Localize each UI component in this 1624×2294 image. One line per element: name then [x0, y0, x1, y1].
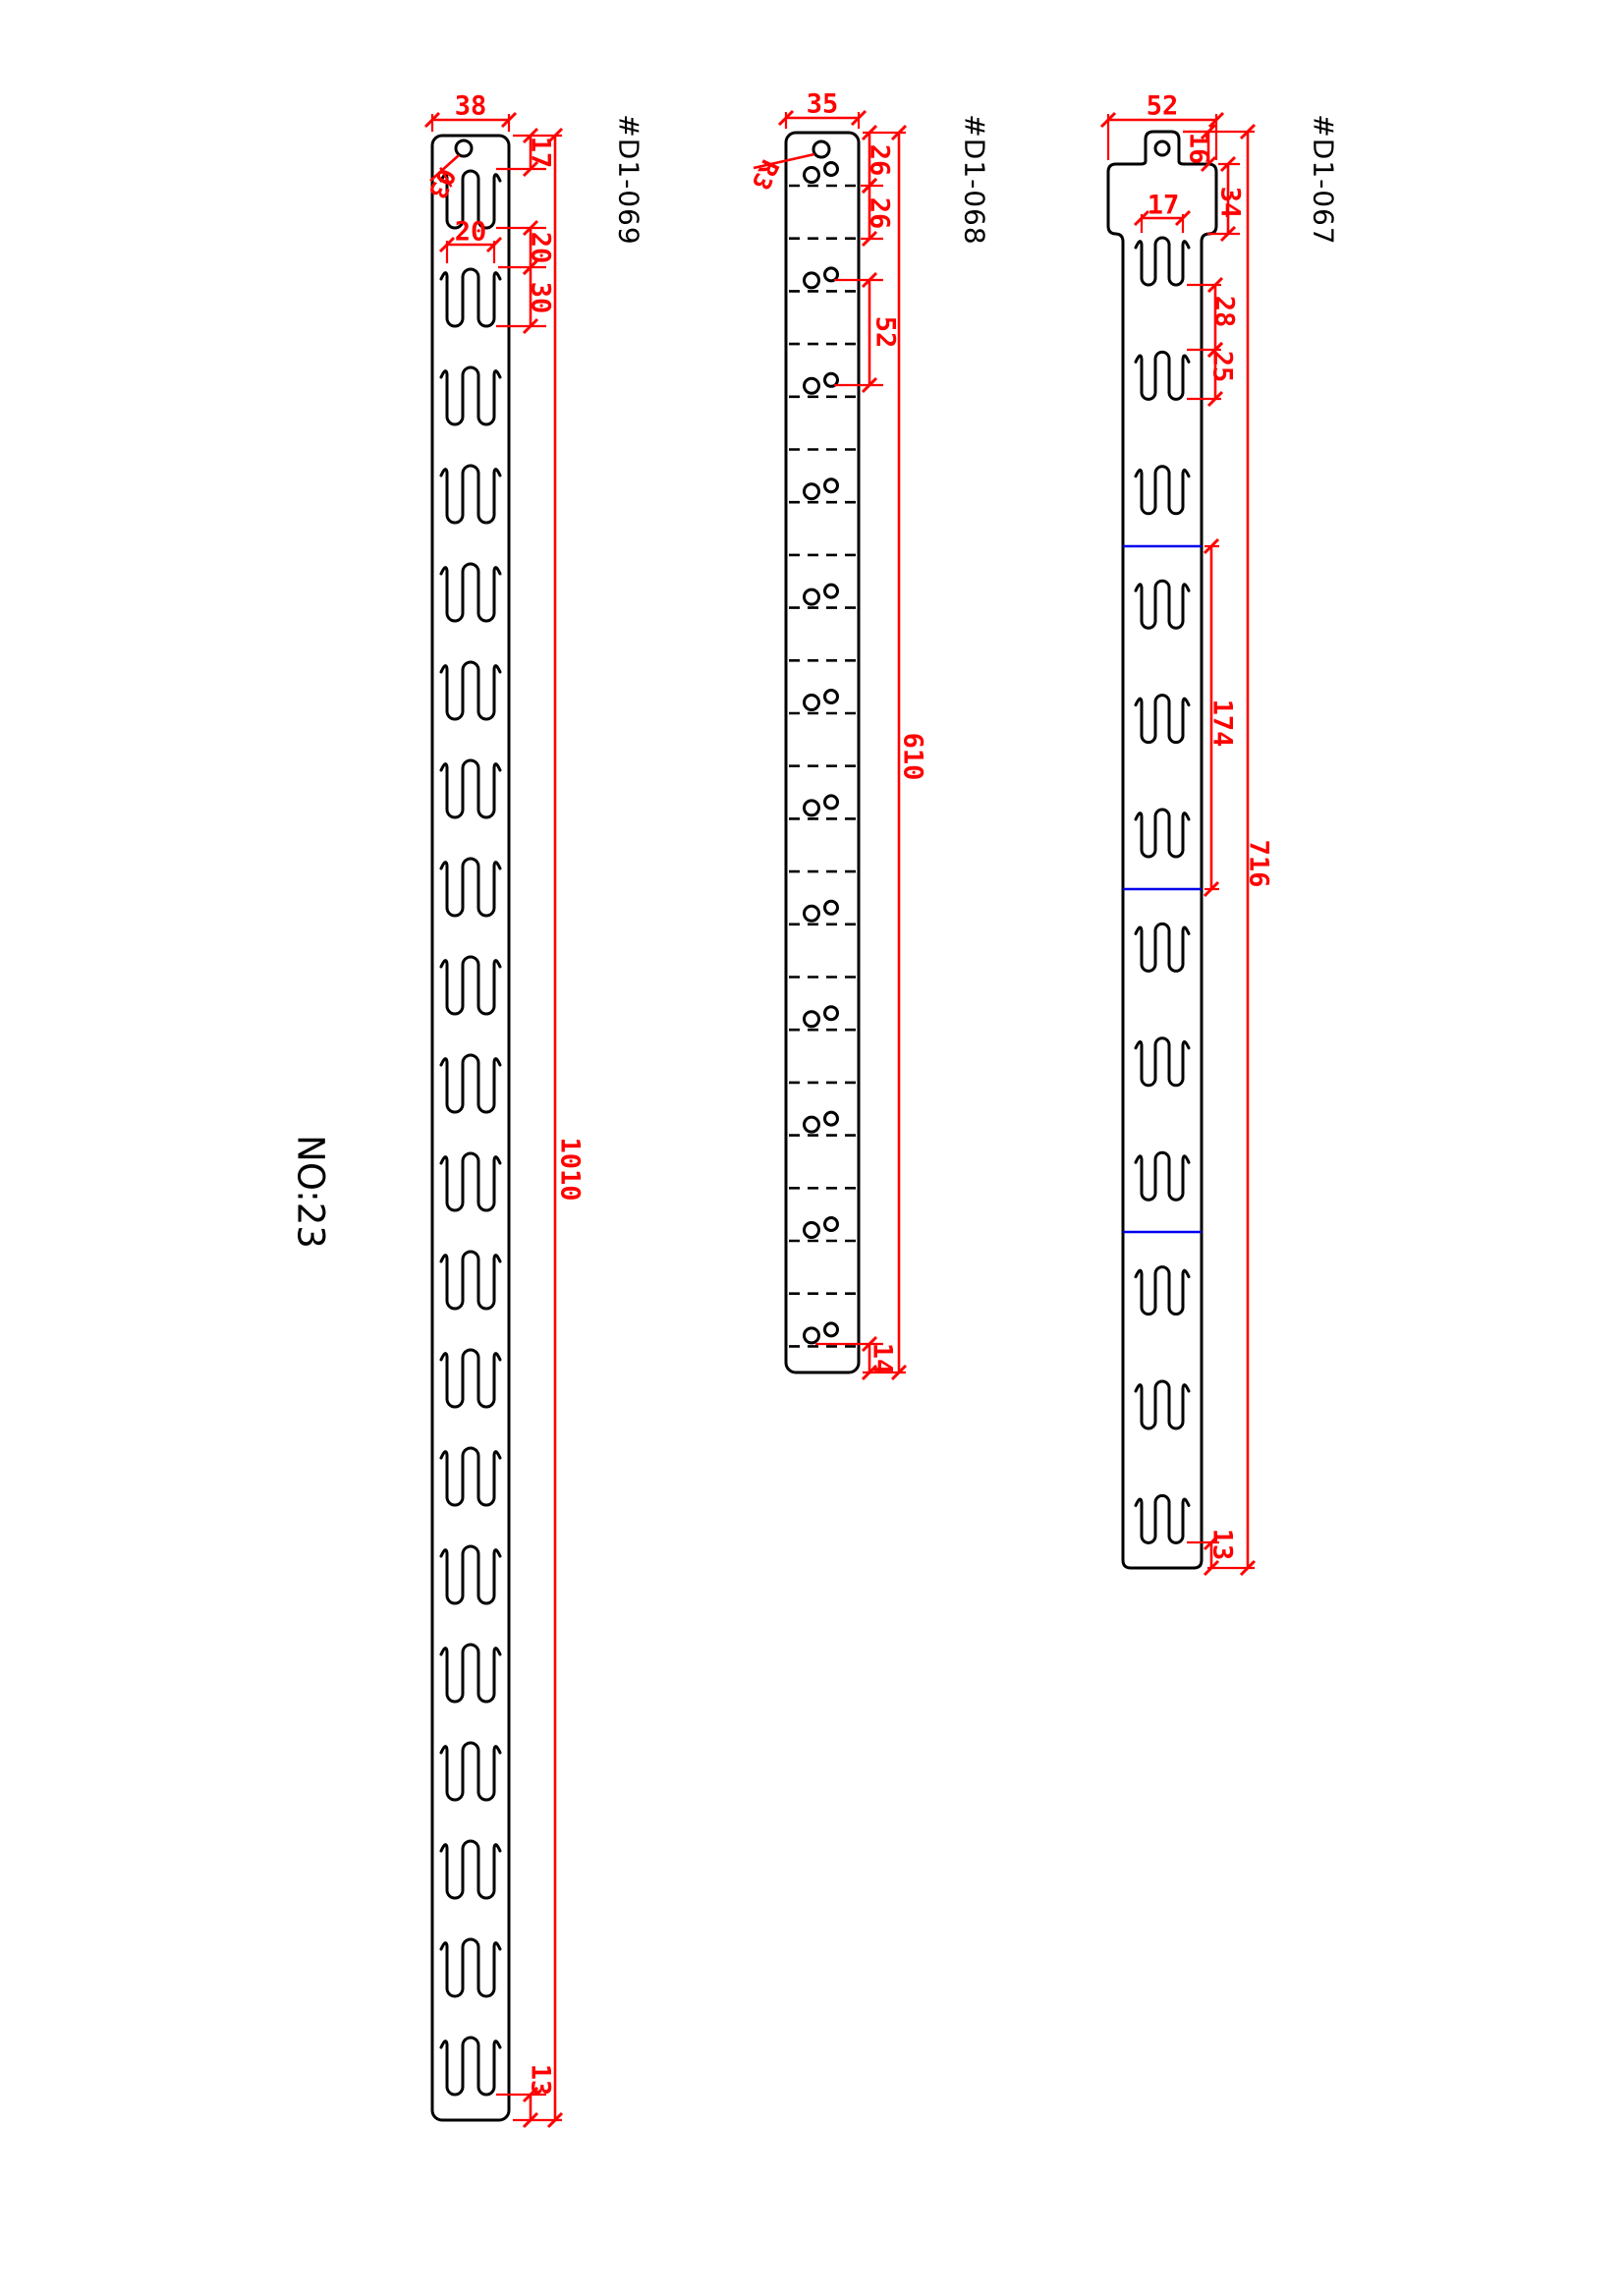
dim-text: 20 — [526, 232, 556, 264]
rivet-hole — [825, 1112, 838, 1125]
w-slot — [1136, 1381, 1189, 1428]
part-outline — [786, 133, 859, 1372]
dimension-30: 30 — [496, 260, 556, 333]
rivet-hole — [805, 1012, 819, 1027]
dimension-34: 34 — [1207, 157, 1246, 241]
w-slot — [441, 1153, 500, 1210]
w-slot — [1136, 1038, 1189, 1086]
rivet-hole — [825, 1218, 838, 1231]
w-slot — [441, 662, 500, 719]
dimension-716: 716 — [1183, 125, 1274, 1575]
drawing-sheet: 3817202030101013Ø33526265261014R35216341… — [0, 0, 1624, 2294]
w-slot — [441, 1939, 500, 1996]
rivet-hole — [825, 479, 838, 492]
part-drawing-d1-067: 52163417282517471613 — [1101, 91, 1274, 1576]
dim-text: 28 — [1209, 296, 1240, 328]
w-slot — [441, 1743, 500, 1800]
w-slot — [441, 1252, 500, 1309]
dim-text: 52 — [870, 316, 901, 349]
dim-text: 174 — [1207, 699, 1238, 748]
dim-text: 25 — [1207, 351, 1238, 383]
rivet-hole — [805, 1223, 819, 1238]
dim-text: 13 — [526, 2064, 556, 2097]
rivet-hole — [805, 168, 819, 183]
mounting-hole — [813, 141, 829, 157]
dim-text: 26 — [865, 197, 895, 230]
rivet-hole — [825, 901, 838, 914]
rivet-hole — [825, 691, 838, 703]
dimension-28: 28 — [1187, 278, 1240, 357]
w-slot — [441, 564, 500, 621]
part-outline — [1108, 132, 1216, 1568]
rivet-hole — [825, 1007, 838, 1020]
dim-text: 14 — [868, 1343, 898, 1375]
w-slot — [1136, 696, 1189, 743]
w-slot — [441, 957, 500, 1014]
w-slot — [441, 1448, 500, 1505]
w-slot — [441, 1645, 500, 1702]
w-slot — [1136, 810, 1189, 857]
rivet-hole — [805, 1328, 819, 1343]
w-slot — [1136, 467, 1189, 514]
w-slot — [441, 1055, 500, 1112]
part-drawing-d1-068: 3526265261014R3 — [746, 89, 927, 1380]
w-slot — [441, 367, 500, 424]
rivet-hole — [805, 906, 819, 921]
rivet-hole — [805, 801, 819, 815]
dim-text: 26 — [865, 144, 895, 177]
dimension-1010: 1010 — [513, 129, 586, 2127]
dimension-25: 25 — [1187, 343, 1238, 406]
w-slot — [1136, 352, 1189, 399]
part-label-d1-068: #D1-068 — [959, 114, 991, 245]
dim-text: 16 — [1184, 133, 1214, 165]
w-slot — [441, 269, 500, 326]
w-slot — [441, 1546, 500, 1603]
rivet-hole — [825, 796, 838, 809]
dimension-17: 17 — [1135, 191, 1190, 234]
dim-text: 20 — [455, 217, 487, 248]
dim-text: 52 — [1147, 91, 1179, 122]
dim-text: 716 — [1244, 840, 1274, 888]
sheet-number-label: NO:23 — [290, 1135, 332, 1249]
w-slot — [441, 466, 500, 523]
w-slot — [1136, 581, 1189, 628]
dim-text: 38 — [455, 91, 487, 122]
dim-text: 17 — [1148, 191, 1180, 221]
dim-text: 610 — [898, 733, 928, 781]
w-slot — [1136, 238, 1189, 285]
part-drawing-d1-069: 3817202030101013Ø3 — [422, 91, 585, 2128]
dim-text: 35 — [807, 89, 839, 120]
w-slot — [1136, 1152, 1189, 1200]
dimension-20: 20 — [496, 221, 556, 274]
w-slot — [441, 1350, 500, 1407]
rivet-hole — [825, 585, 838, 597]
hole-callout: Ø3 — [422, 155, 461, 203]
dimension-174: 174 — [1204, 539, 1238, 896]
w-slot — [441, 760, 500, 817]
dim-text: 1010 — [555, 1137, 586, 1201]
dim-text: Ø3 — [422, 163, 461, 202]
rivet-hole — [805, 484, 819, 499]
w-slot — [441, 1841, 500, 1898]
dim-text: 30 — [526, 282, 556, 314]
w-slot — [441, 2038, 500, 2095]
dimension-38: 38 — [425, 91, 516, 133]
part-label-d1-069: #D1-069 — [613, 114, 645, 245]
dimension-17: 17 — [496, 129, 562, 176]
rivet-hole — [805, 589, 819, 604]
rivet-hole — [805, 378, 819, 393]
mounting-hole — [1155, 141, 1169, 155]
w-slot — [441, 859, 500, 916]
dimension-26: 26 — [861, 179, 895, 246]
dimension-35: 35 — [779, 89, 866, 130]
cad-drawing-canvas: 3817202030101013Ø33526265261014R35216341… — [0, 0, 1624, 2294]
part-label-d1-067: #D1-067 — [1308, 114, 1340, 245]
w-slot — [1136, 923, 1189, 971]
dim-text: 13 — [1207, 1529, 1238, 1561]
mounting-hole — [456, 140, 472, 156]
w-slot — [1136, 1267, 1189, 1315]
rivet-hole — [805, 273, 819, 288]
dimension-610: 610 — [863, 126, 928, 1379]
rivet-hole — [825, 163, 838, 176]
rivet-hole — [825, 1323, 838, 1336]
rivet-hole — [805, 696, 819, 710]
rivet-hole — [805, 1117, 819, 1132]
part-outline — [432, 136, 509, 2120]
dim-text: 34 — [1215, 187, 1246, 219]
w-slot — [1136, 1495, 1189, 1542]
dimension-52: 52 — [834, 273, 901, 392]
